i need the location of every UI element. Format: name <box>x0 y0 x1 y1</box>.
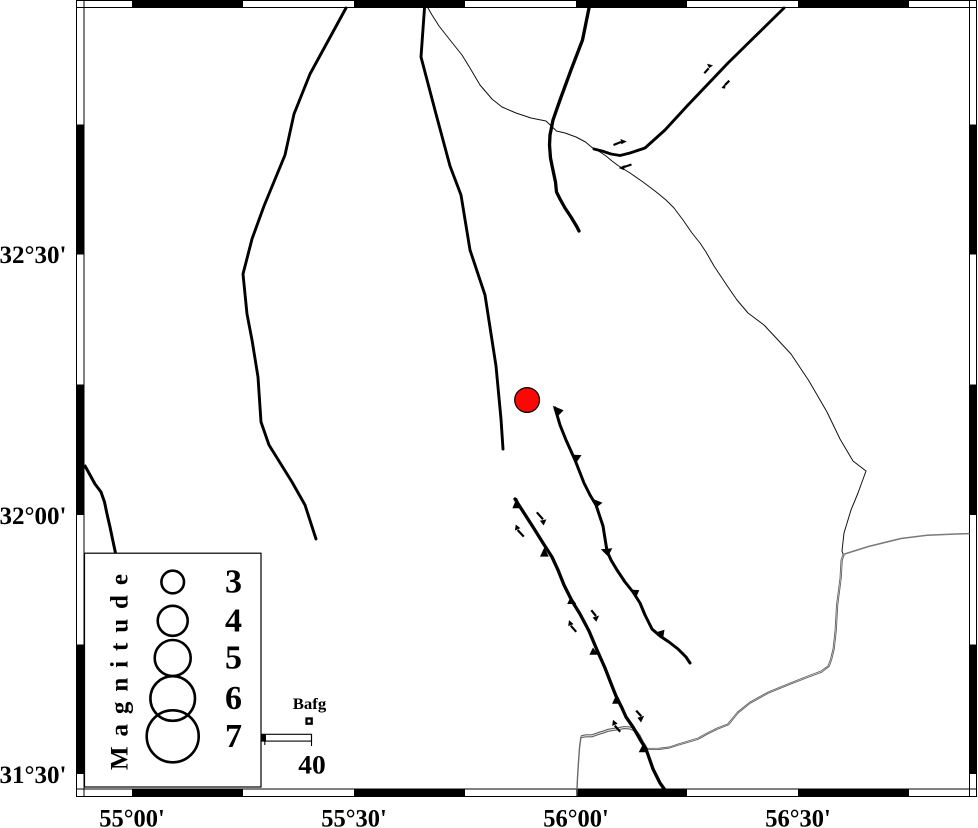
svg-text:Bafg: Bafg <box>293 696 327 713</box>
svg-text:7: 7 <box>225 718 242 755</box>
svg-text:31°30': 31°30' <box>0 762 67 789</box>
svg-text:6: 6 <box>225 680 242 717</box>
svg-text:55°00': 55°00' <box>99 806 165 828</box>
svg-text:3: 3 <box>225 564 242 601</box>
svg-text:56°00': 56°00' <box>543 806 609 828</box>
svg-text:4: 4 <box>225 602 242 639</box>
svg-text:5: 5 <box>225 640 242 677</box>
svg-text:56°30': 56°30' <box>765 806 831 828</box>
svg-text:55°30': 55°30' <box>321 806 387 828</box>
svg-text:32°30': 32°30' <box>0 242 67 269</box>
svg-text:40: 40 <box>298 750 326 779</box>
svg-text:32°00': 32°00' <box>0 503 67 530</box>
